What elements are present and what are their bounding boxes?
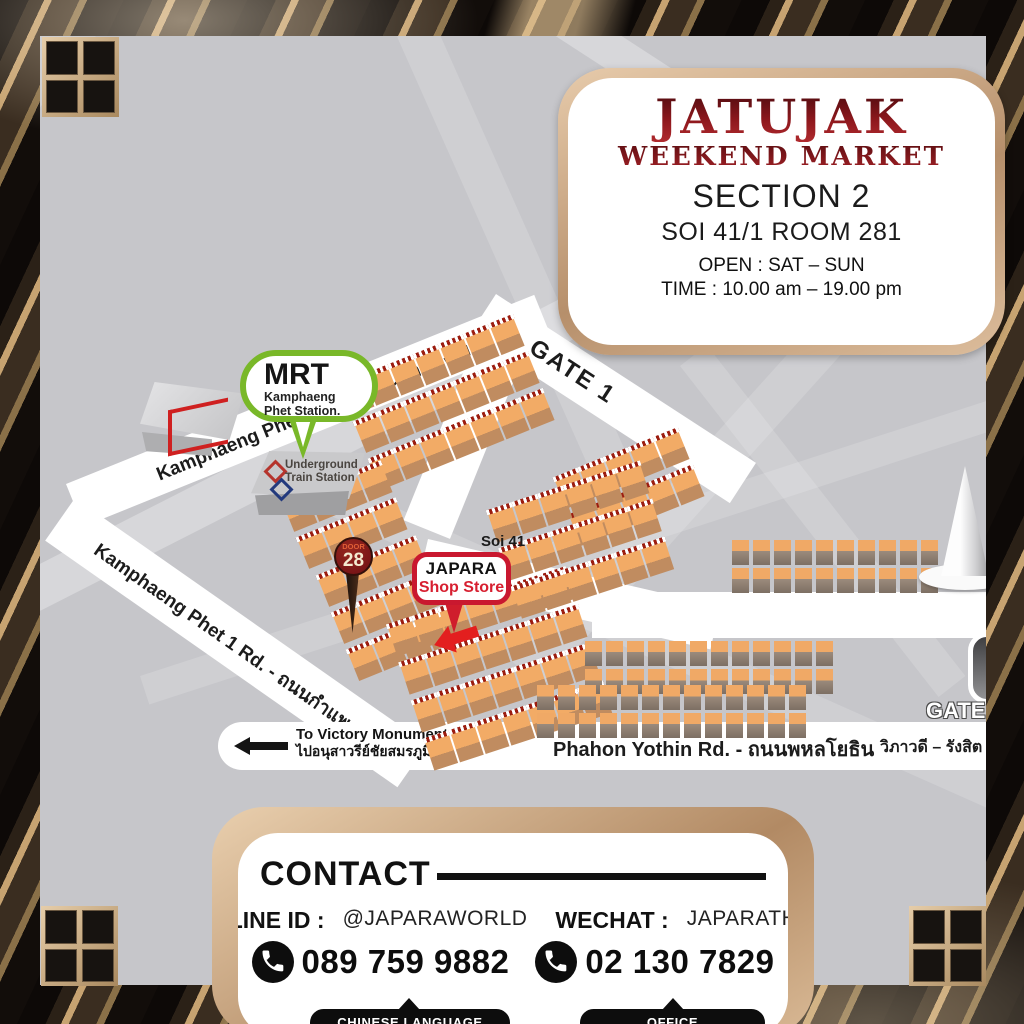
chinese-language-pill: CHINESE LANGUAGE bbox=[310, 1009, 510, 1024]
market-stall bbox=[747, 713, 764, 738]
section-label: SECTION 2 bbox=[568, 178, 995, 215]
market-stall bbox=[690, 641, 707, 666]
market-stall bbox=[795, 641, 812, 666]
market-stall bbox=[816, 669, 833, 694]
window-icon bbox=[909, 906, 986, 986]
market-stall bbox=[837, 568, 854, 593]
building-left bbox=[140, 382, 244, 458]
market-stall bbox=[558, 713, 575, 738]
mrt-title: MRT bbox=[264, 360, 362, 390]
stall-row bbox=[732, 540, 938, 565]
market-stall bbox=[726, 685, 743, 710]
market-stall bbox=[795, 540, 812, 565]
market-stall bbox=[816, 568, 833, 593]
market-stall bbox=[747, 685, 764, 710]
contact-title: CONTACT bbox=[260, 855, 431, 894]
market-stall bbox=[900, 540, 917, 565]
market-stall bbox=[774, 540, 791, 565]
market-stall bbox=[789, 685, 806, 710]
mrt-station-bubble: MRT Kamphaeng Phet Station. bbox=[240, 350, 378, 422]
phone-chinese-number: 089 759 9882 bbox=[302, 943, 510, 981]
phone-icon bbox=[252, 941, 294, 983]
stall-cluster bbox=[537, 685, 806, 741]
open-days: OPEN : SAT – SUN bbox=[568, 255, 995, 277]
stall-row bbox=[537, 685, 806, 710]
market-stall bbox=[669, 641, 686, 666]
gate-3-label: GATE 3 bbox=[926, 698, 986, 724]
market-stall bbox=[879, 540, 896, 565]
contact-card: CONTACT LINE ID : @JAPARAWORLD WECHAT : … bbox=[212, 807, 814, 1024]
open-time: TIME : 10.00 am – 19.00 pm bbox=[568, 279, 995, 301]
market-stall bbox=[732, 568, 749, 593]
phone-icon bbox=[535, 941, 577, 983]
stall-row bbox=[537, 713, 806, 738]
market-stall bbox=[537, 713, 554, 738]
window-icon bbox=[42, 37, 119, 117]
market-stall bbox=[600, 713, 617, 738]
market-stall bbox=[858, 568, 875, 593]
stall-row bbox=[732, 568, 938, 593]
market-stall bbox=[684, 685, 701, 710]
market-stall bbox=[663, 713, 680, 738]
market-stall bbox=[816, 540, 833, 565]
line-id-value: @JAPARAWORLD bbox=[343, 907, 528, 934]
market-stall bbox=[816, 641, 833, 666]
wechat-label: WECHAT : bbox=[555, 907, 668, 934]
market-stall bbox=[684, 713, 701, 738]
market-stall bbox=[795, 568, 812, 593]
brand-subtitle: WEEKEND MARKET bbox=[568, 142, 995, 172]
mrt-subtitle: Kamphaeng Phet Station. bbox=[264, 391, 362, 418]
market-stall bbox=[900, 568, 917, 593]
market-stall bbox=[753, 568, 770, 593]
stall-cluster bbox=[732, 540, 938, 596]
market-stall bbox=[642, 685, 659, 710]
market-stall bbox=[558, 685, 575, 710]
market-stall bbox=[753, 641, 770, 666]
brand-title: JATUJAK bbox=[568, 94, 995, 142]
market-stall bbox=[537, 685, 554, 710]
market-stall bbox=[879, 568, 896, 593]
market-stall bbox=[621, 685, 638, 710]
address-label: SOI 41/1 ROOM 281 bbox=[568, 218, 995, 247]
market-stall bbox=[732, 641, 749, 666]
market-stall bbox=[579, 713, 596, 738]
underground-station-label: Underground Train Station bbox=[285, 459, 358, 484]
market-stall bbox=[753, 540, 770, 565]
office-pill: OFFICE bbox=[580, 1009, 765, 1024]
market-stall bbox=[774, 641, 791, 666]
underground-station-building: Underground Train Station bbox=[251, 451, 365, 517]
market-stall bbox=[768, 685, 785, 710]
door-28-marker: DOOR 28 bbox=[334, 537, 373, 576]
market-stall bbox=[585, 641, 602, 666]
market-stall bbox=[627, 641, 644, 666]
market-stall bbox=[726, 713, 743, 738]
market-stall bbox=[921, 540, 938, 565]
market-stall bbox=[642, 713, 659, 738]
market-stall bbox=[663, 685, 680, 710]
market-stall bbox=[732, 540, 749, 565]
market-stall bbox=[606, 641, 623, 666]
market-stall bbox=[858, 540, 875, 565]
stall-row bbox=[585, 641, 833, 666]
market-stall bbox=[648, 641, 665, 666]
soi-41-label: Soi 41 bbox=[481, 533, 525, 550]
market-stall bbox=[705, 685, 722, 710]
market-stall bbox=[711, 641, 728, 666]
market-stall bbox=[621, 713, 638, 738]
flyer: Kamphaeng Phet 2 Rd. - ถนนกำแพงเพชร 2 GA… bbox=[0, 0, 1024, 1024]
market-stall bbox=[579, 685, 596, 710]
contact-rule bbox=[437, 873, 766, 880]
market-stall bbox=[768, 713, 785, 738]
market-stall bbox=[789, 713, 806, 738]
market-stall bbox=[837, 540, 854, 565]
gate-3-pill bbox=[968, 632, 986, 704]
title-card: JATUJAK WEEKEND MARKET SECTION 2 SOI 41/… bbox=[558, 68, 1005, 355]
market-stall bbox=[705, 713, 722, 738]
line-id-label: LINE ID : bbox=[238, 907, 325, 934]
japara-shop-bubble: JAPARA Shop Store bbox=[412, 552, 511, 605]
phone-office-number: 02 130 7829 bbox=[585, 943, 774, 981]
market-stall bbox=[774, 568, 791, 593]
window-icon bbox=[41, 906, 118, 986]
market-stall bbox=[600, 685, 617, 710]
wechat-value: JAPARATH bbox=[687, 907, 788, 934]
